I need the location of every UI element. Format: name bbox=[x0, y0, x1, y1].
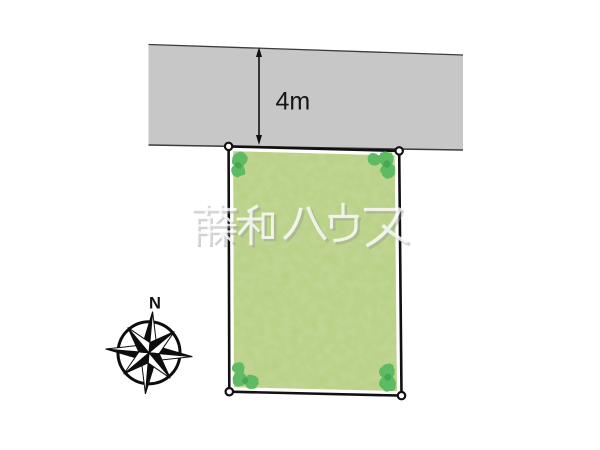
svg-text:4m: 4m bbox=[276, 88, 311, 116]
svg-text:N: N bbox=[149, 295, 161, 313]
